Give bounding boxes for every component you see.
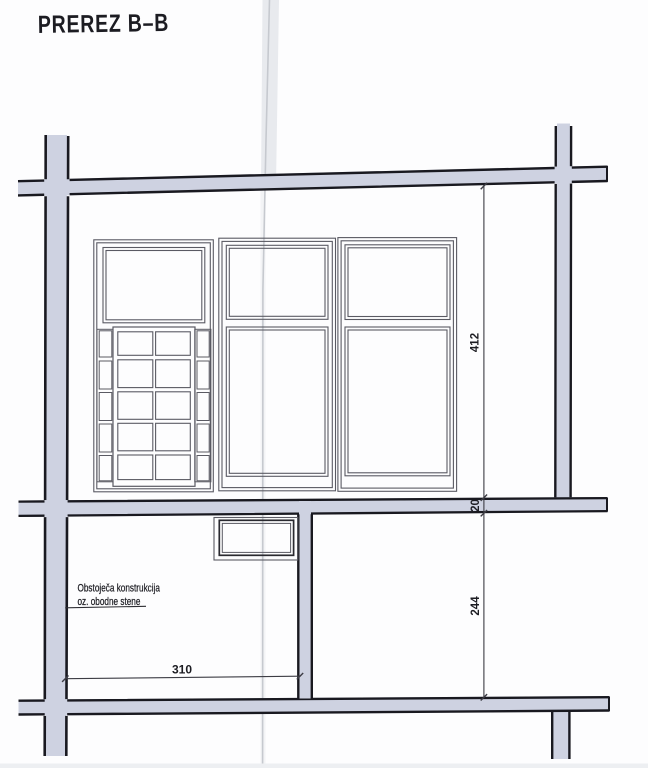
- svg-text:412: 412: [470, 333, 482, 352]
- svg-text:310: 310: [172, 662, 192, 676]
- svg-text:244: 244: [470, 596, 482, 616]
- svg-text:PREREZ B–B: PREREZ B–B: [38, 9, 170, 39]
- svg-text:20: 20: [470, 499, 482, 512]
- svg-text:Obstoječa konstrukcija: Obstoječa konstrukcija: [78, 582, 161, 595]
